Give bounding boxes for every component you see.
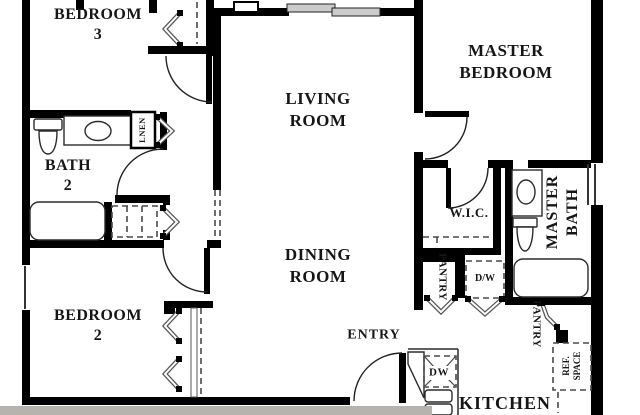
kitchen-label: KITCHEN [459,393,551,415]
wic-label: W.I.C. [449,205,488,221]
door-leaf-bedroom2 [204,248,210,294]
ref-space-label: REF. SPACE [561,352,583,381]
wall-bedroom2-door-stub [207,240,221,248]
toilet-bowl-master-bath [517,227,533,251]
door-leaf-master-bedroom [425,111,469,117]
wall-hallcloset-jamb-top [163,195,170,205]
bifold-b2closet-lower [165,356,182,392]
kitchen-sink-bowl-1 [425,390,452,402]
door-arc-master-bedroom [425,117,467,159]
door-arc-bath2 [117,149,163,195]
door-arc-wic [448,168,488,208]
wall-dining-right [414,152,423,310]
wall-wic-top-b [488,160,513,168]
sink-bath2 [85,122,111,141]
bathtub-bath2 [30,202,105,240]
pantry-left-label: PANTRY [435,253,448,301]
wall-mbr-left [414,0,423,113]
window-bedroom2-left [24,266,26,309]
wall-bedroom2-top [30,240,164,248]
toilet-tank-master-bath [513,218,537,227]
master-bath-label: MASTER BATH [543,175,583,249]
floorplan: BEDROOM 3 BATH 2 BEDROOM 2 LIVING ROOM D… [0,0,640,415]
wall-right-lower [591,205,603,415]
toilet-bowl-bath2 [39,131,57,154]
dishwasher-label: DW [429,366,449,379]
window-top-left-of-slider [234,2,258,12]
toilet-tank-bath2 [34,119,62,130]
dining-room-label: DINING ROOM [285,244,351,288]
door-leaf-bath2 [115,195,163,203]
window-mbath-right-a [587,164,589,205]
bedroom2-label: BEDROOM 2 [54,306,142,346]
master-bedroom-label: MASTER BEDROOM [459,40,552,84]
sliding-door-panel-2 [332,8,380,16]
door-leaf-bedroom3 [206,56,212,104]
wall-bath2-door-jamb [160,112,167,150]
door-arc-entry [354,353,402,401]
door-arc-bedroom3 [166,56,212,102]
pantry-right-label: PANTRY [529,300,542,348]
wall-b3closet-left-stub [149,0,157,13]
wall-wic-top-a [423,160,448,168]
linen-label: LNEN [137,117,147,143]
door-leaf-wic [446,168,451,208]
wall-hall-living [213,8,221,190]
door-arc-bedroom2 [163,248,207,292]
window-mbath-right-b [594,164,596,205]
bathtub-master-bath [514,259,588,297]
wall-left-lower [22,310,30,405]
counter-entry-panel [408,352,424,398]
wall-corner-pantry-stub [556,330,568,343]
photo-edge-band [0,406,432,415]
bedroom3-label: BEDROOM 3 [54,5,142,45]
door-leaf-entry [399,353,406,403]
living-room-label: LIVING ROOM [285,88,350,132]
wall-mbath-bottom [505,297,591,305]
laundry-label: D/W [475,273,495,285]
entry-label: ENTRY [347,328,401,345]
sliding-door-panel-1 [287,4,335,12]
sink-master-bath [517,180,535,204]
wall-pantry-divider [455,253,465,298]
wall-left-upper [22,0,30,265]
bifold-b3closet [165,10,183,48]
wall-wic-right [493,168,501,255]
hall-closet-dashed [112,206,157,237]
bath2-label: BATH 2 [45,156,91,196]
wall-mbr-bottom-right [528,160,591,168]
wall-right-upper [591,0,603,163]
wall-b2closet-jamb [164,301,175,314]
wall-bottom [22,397,350,405]
b2closet-track [191,308,197,397]
